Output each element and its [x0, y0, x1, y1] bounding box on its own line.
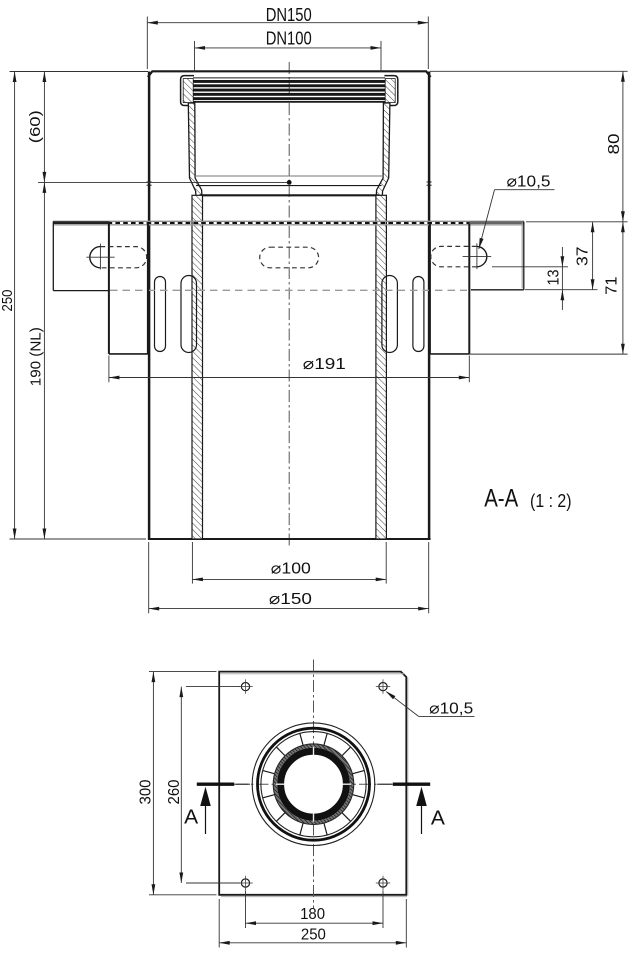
svg-text:(60): (60) [27, 110, 44, 143]
svg-text:⌀10,5: ⌀10,5 [429, 701, 473, 718]
svg-text:71: 71 [604, 276, 621, 295]
svg-text:180: 180 [300, 906, 325, 923]
svg-text:DN150: DN150 [266, 4, 312, 25]
svg-text:260: 260 [166, 779, 183, 804]
svg-text:⌀150: ⌀150 [269, 591, 312, 608]
svg-text:⌀191: ⌀191 [303, 356, 346, 373]
svg-text:80: 80 [606, 133, 623, 154]
svg-text:A: A [431, 808, 446, 830]
svg-text:13: 13 [546, 270, 563, 286]
svg-text:37: 37 [575, 246, 592, 266]
svg-text:DN100: DN100 [266, 28, 312, 49]
svg-text:A-A: A-A [484, 485, 518, 513]
svg-text:⌀100: ⌀100 [271, 561, 311, 578]
svg-text:300: 300 [137, 779, 154, 804]
svg-text:250: 250 [0, 290, 16, 312]
svg-text:(1 : 2): (1 : 2) [530, 490, 572, 511]
svg-text:190 (NL): 190 (NL) [29, 327, 45, 386]
svg-text:⌀10,5: ⌀10,5 [507, 174, 551, 191]
svg-text:250: 250 [301, 926, 326, 943]
svg-text:A: A [184, 806, 199, 828]
